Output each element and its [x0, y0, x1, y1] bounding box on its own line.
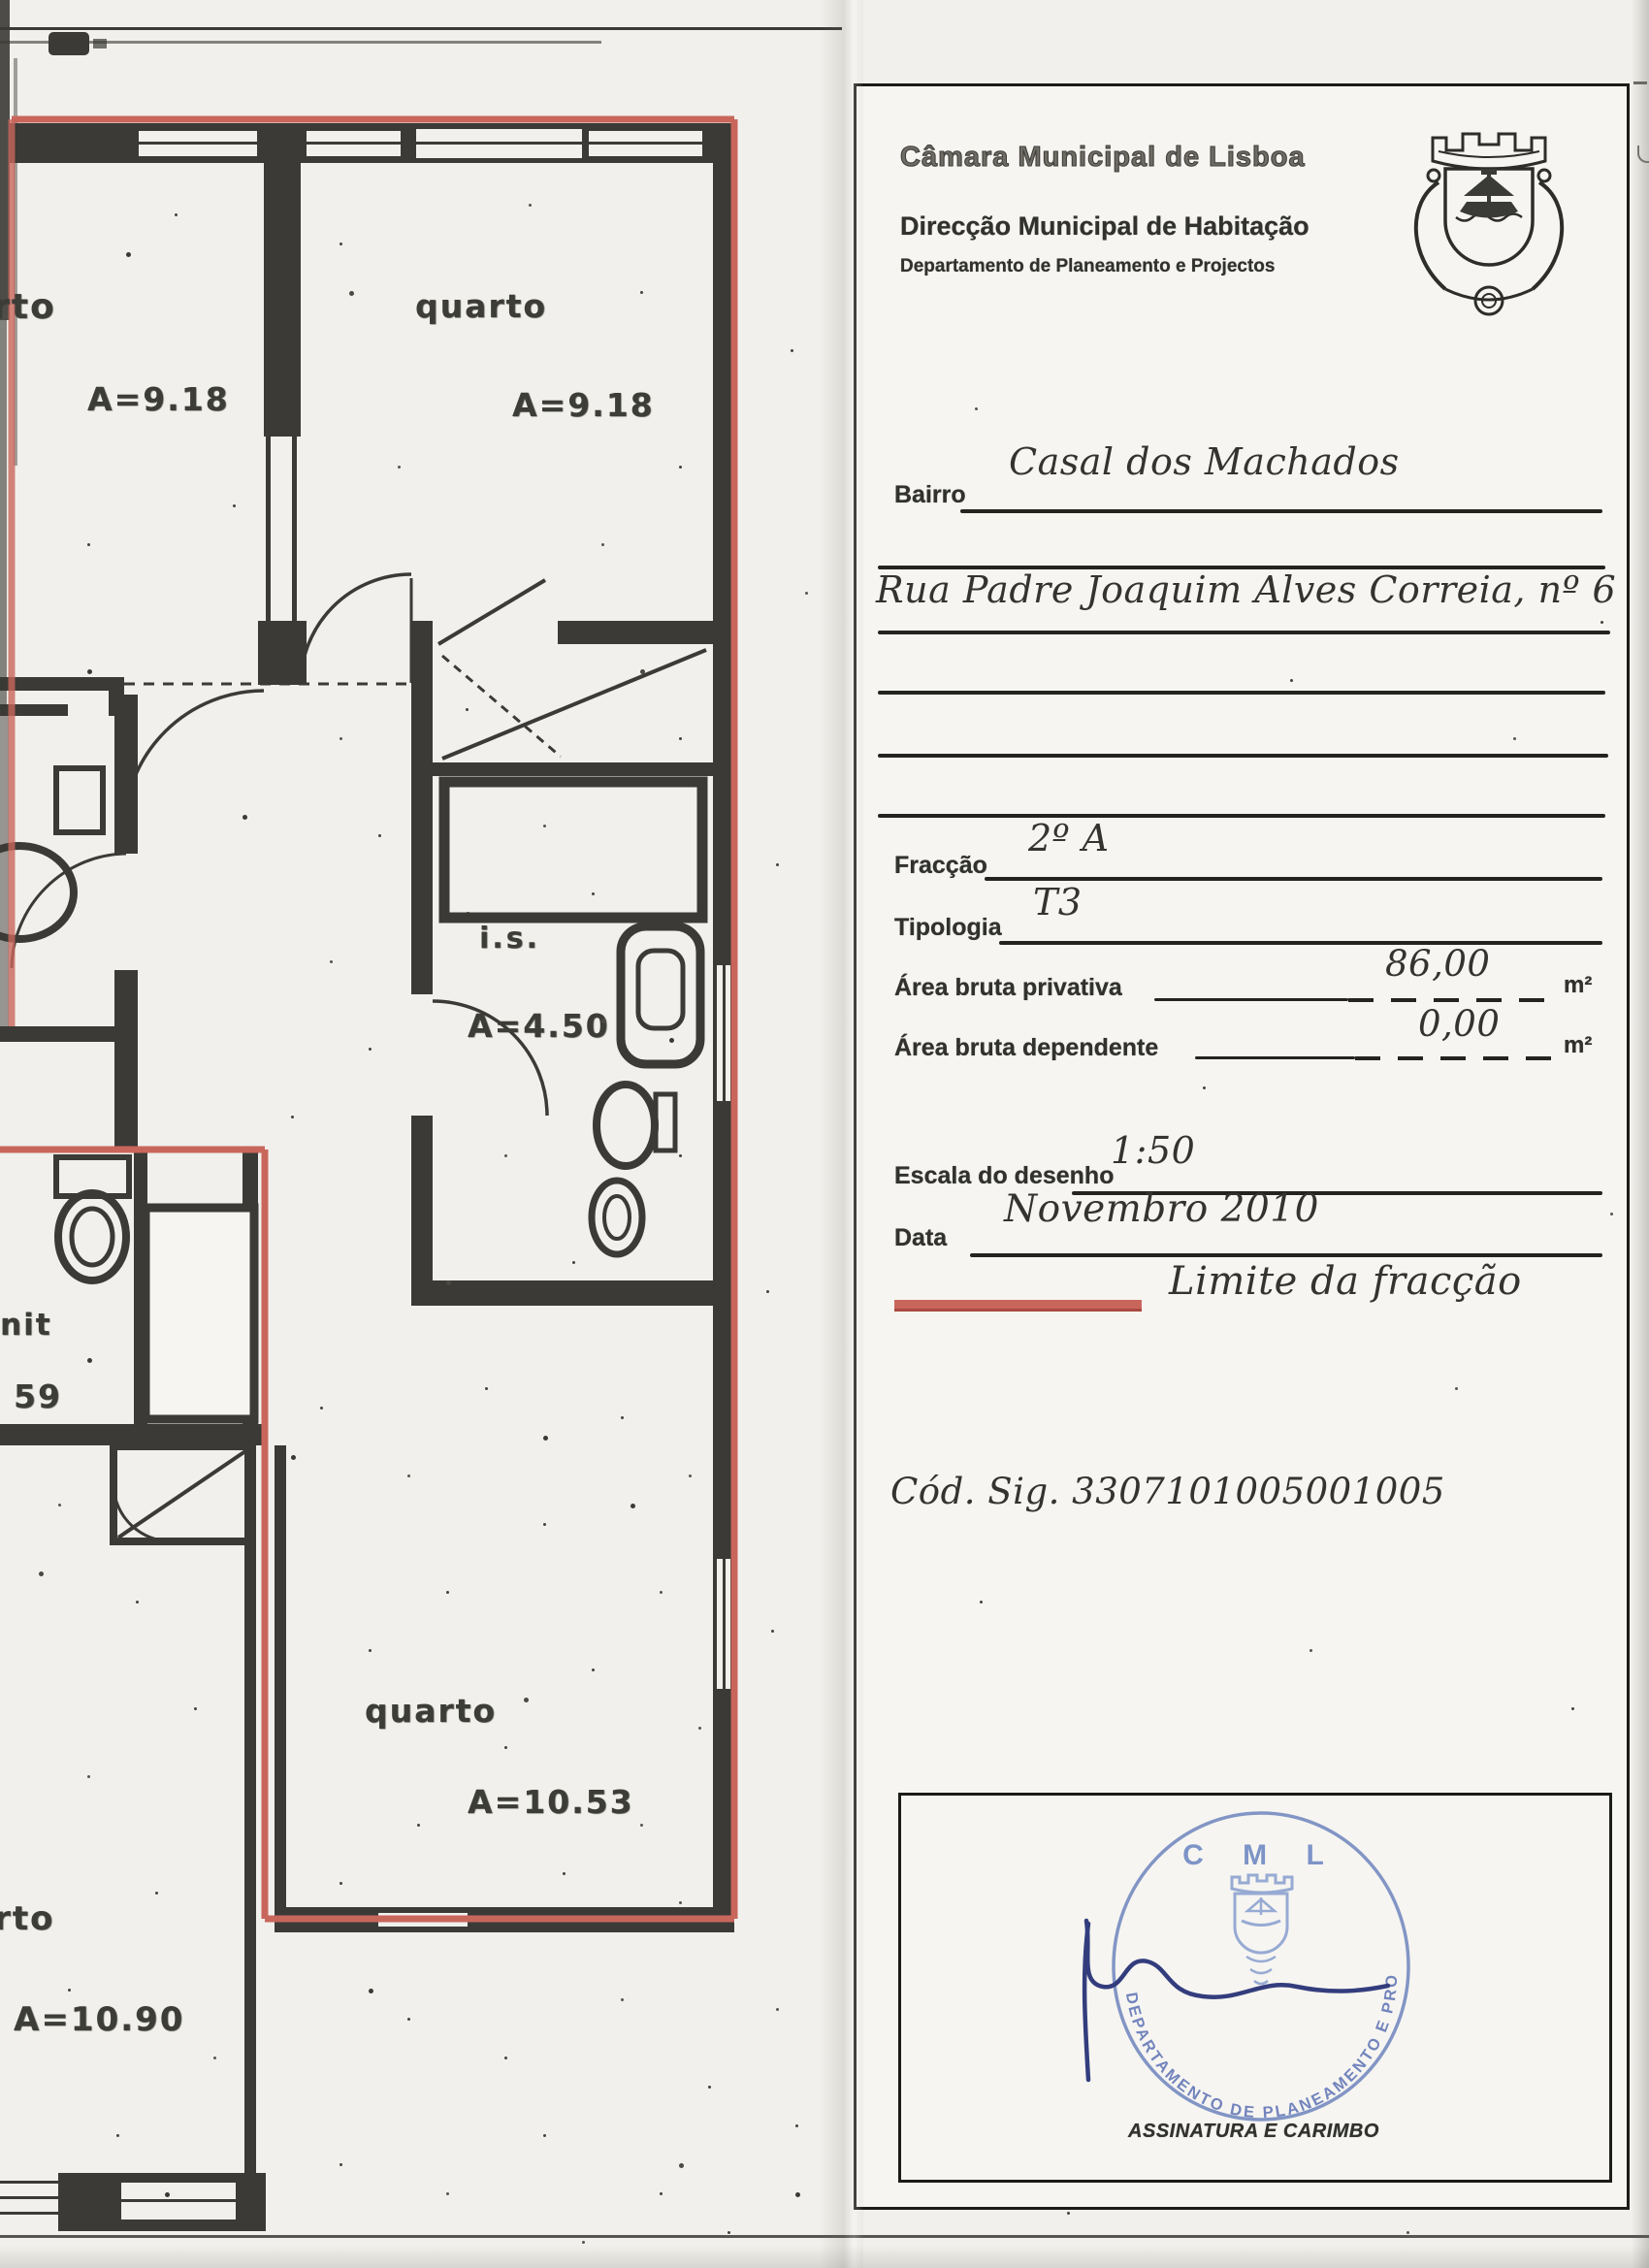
page-right-edge-shadow: [1632, 0, 1649, 2268]
area-privativa-dashes: [1348, 998, 1554, 1002]
bathroom-area: A=4.50: [468, 1007, 610, 1045]
data-label: Data: [894, 1224, 947, 1252]
cod-sig: Cód. Sig. 3307101005001005: [890, 1471, 1445, 1512]
room-label-bottomleft-partial: rto: [0, 1899, 54, 1938]
blank-line-4: [878, 814, 1605, 818]
room-area-topleft: A=9.18: [87, 380, 230, 418]
scanned-floorplan-document: rto A=9.18 quarto A=9.18 i.s. A=4.50 qua…: [0, 0, 1649, 2268]
bathroom-label: i.s.: [479, 922, 540, 956]
org-name-line2: Direcção Municipal de Habitação: [900, 211, 1309, 242]
area-dependente-unit: m²: [1564, 1032, 1592, 1059]
department-stamp: C M L DEPARTAMENTO DE PLANEAMENTO E PROJ…: [1043, 1797, 1470, 2136]
lisbon-coat-of-arms: [1392, 109, 1586, 332]
label-fragment-nit: nit: [0, 1308, 52, 1343]
room-area-mid: A=10.53: [468, 1783, 634, 1821]
escala-label: Escala do desenho: [894, 1162, 1114, 1190]
blank-line-3: [878, 754, 1608, 758]
room-label-topleft-partial: rto: [0, 287, 56, 327]
room-label-topright: quarto: [415, 287, 547, 325]
scan-noise-large: [0, 0, 5, 5]
org-name-line1: Câmara Municipal de Lisboa: [900, 142, 1306, 174]
bairro-label: Bairro: [894, 481, 966, 509]
corner-mark: [1633, 81, 1647, 84]
tipologia-line: [999, 941, 1602, 945]
fraccao-value: 2º A: [1028, 817, 1110, 859]
blank-line-2: [878, 691, 1605, 695]
label-fragment-59: 59: [14, 1377, 62, 1415]
stamp-top-text: C M L: [1182, 1839, 1340, 1871]
bairro-value: Casal dos Machados: [1009, 440, 1400, 483]
bairro-line: [960, 509, 1602, 513]
address-line: [878, 631, 1610, 634]
tipologia-value: T3: [1033, 881, 1083, 923]
area-dependente-label: Área bruta dependente: [894, 1034, 1158, 1062]
address-value: Rua Padre Joaquim Alves Correia, nº 6: [876, 568, 1616, 611]
area-privativa-unit: m²: [1564, 972, 1592, 999]
area-dependente-line: [1195, 1056, 1355, 1059]
area-privativa-value: 86,00: [1385, 943, 1490, 985]
fraccao-label: Fracção: [894, 852, 987, 880]
room-area-bottomleft: A=10.90: [14, 2000, 184, 2039]
escala-value: 1:50: [1111, 1129, 1195, 1172]
tipologia-label: Tipologia: [894, 914, 1002, 942]
room-area-topright: A=9.18: [512, 386, 655, 424]
area-privativa-label: Área bruta privativa: [894, 974, 1122, 1002]
legend-red-line: [894, 1300, 1142, 1312]
area-dependente-value: 0,00: [1418, 1003, 1500, 1045]
sheet-edge-line: [0, 2235, 1649, 2238]
area-privativa-line: [1154, 998, 1348, 1001]
org-name-line3: Departamento de Planeamento e Projectos: [900, 256, 1275, 277]
area-dependente-dashes: [1355, 1056, 1554, 1060]
floorplan-drawing: [0, 0, 854, 2268]
data-value: Novembro 2010: [1004, 1187, 1319, 1231]
data-line: [970, 1253, 1602, 1257]
corner-mark-2: [1637, 146, 1649, 163]
legend-label: Limite da fracção: [1169, 1259, 1522, 1304]
room-label-mid: quarto: [365, 1692, 497, 1730]
